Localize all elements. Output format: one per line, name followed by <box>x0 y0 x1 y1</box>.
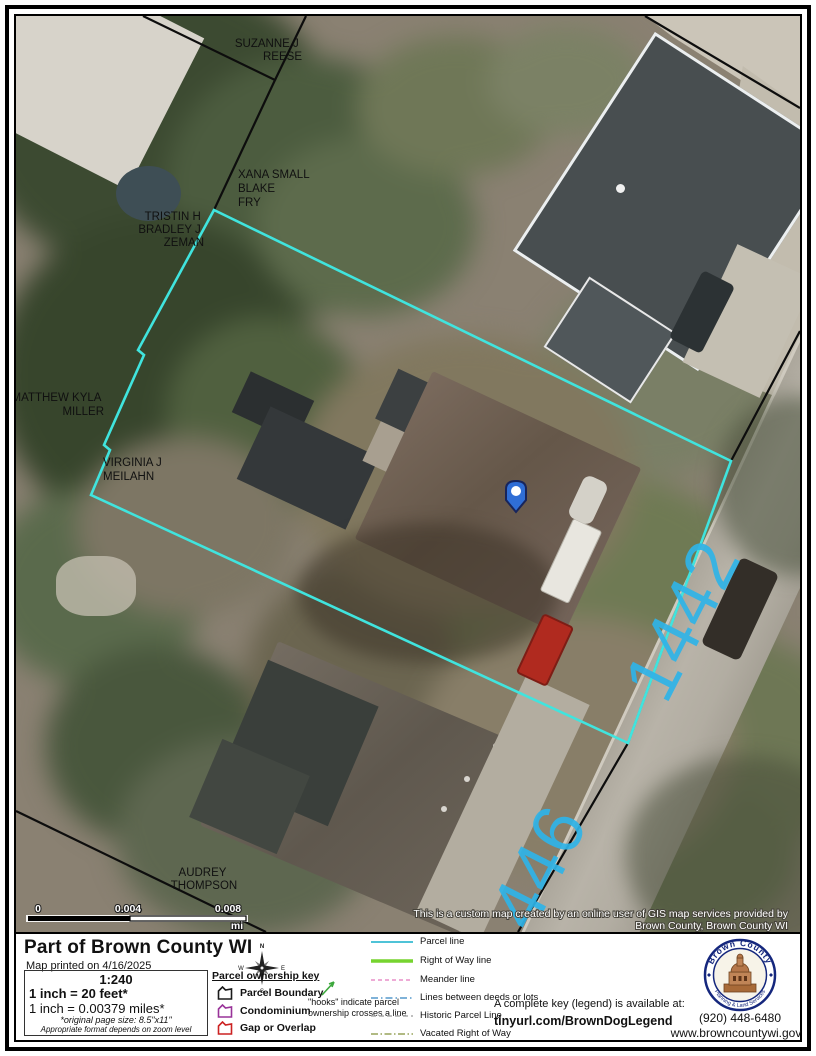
brown-county-logo: Brown County Planning & Land Services <box>703 938 777 1012</box>
ownership-key-label: Gap or Overlap <box>240 1022 316 1034</box>
scale-note-format: Appropriate format depends on zoom level <box>25 1025 207 1034</box>
page-inner-border: 1442 446 SUZANNE J REESE XANA SMALL BLAK… <box>14 14 802 1042</box>
scale-bar: 0 0.004 0.008 mi <box>26 903 248 932</box>
line-key-item: Vacated Right of Way <box>371 1028 511 1039</box>
line-key-label: Meander line <box>420 974 475 985</box>
phone-number: (920) 448-6480 <box>668 1011 812 1025</box>
complete-key-url: tinyurl.com/BrownDogLegend <box>494 1014 672 1028</box>
historic-parcel-line-sample <box>371 1012 413 1020</box>
website-url: www.browncountywi.gov <box>656 1026 816 1040</box>
owner-label-tristin: TRISTIN H BRADLEY J ZEMAN <box>138 211 204 249</box>
street-number-front: 1442 <box>609 527 757 713</box>
owner-label-matthew: MATTHEW KYLA MILLER <box>16 392 104 418</box>
scale-unit: mi <box>231 920 243 932</box>
map-overlay: 1442 446 SUZANNE J REESE XANA SMALL BLAK… <box>16 16 800 932</box>
scale-miles: 1 inch = 0.00379 miles* <box>25 1001 165 1016</box>
line-key-label: Parcel line <box>420 936 464 947</box>
page-title: Part of Brown County WI <box>24 937 252 959</box>
scale-info-box: 1:240 1 inch = 20 feet* 1 inch = 0.00379… <box>24 970 208 1036</box>
owner-label-xana: XANA SMALL BLAKE FRY <box>238 169 312 209</box>
line-key-label: Right of Way line <box>420 955 491 966</box>
line-key-item: Parcel line <box>371 936 464 947</box>
right-of-way-line-sample <box>371 957 413 965</box>
map-attribution: This is a custom map created by an onlin… <box>413 908 788 932</box>
ownership-key-heading: Parcel ownership key <box>212 970 319 982</box>
hook-arrow-icon <box>318 978 340 998</box>
svg-text:N: N <box>260 944 264 950</box>
ownership-key-item: Gap or Overlap <box>216 1021 316 1035</box>
condominium-icon <box>216 1004 234 1018</box>
meander-line-sample <box>371 976 413 984</box>
page-outer-border: 1442 446 SUZANNE J REESE XANA SMALL BLAK… <box>5 5 811 1051</box>
location-pin-marker <box>506 481 526 512</box>
gap-overlap-icon <box>216 1021 234 1035</box>
owner-label-virginia: VIRGINIA J MEILAHN <box>103 457 165 483</box>
svg-text:This is a custom map created b: This is a custom map created by an onlin… <box>413 908 788 920</box>
line-key-item: Right of Way line <box>371 955 491 966</box>
complete-key-text: A complete key (legend) is available at: <box>494 998 685 1010</box>
scale-note-page-size: *original page size: 8.5"x11" <box>25 1015 207 1025</box>
parcel-line-sample <box>371 938 413 946</box>
owner-label-audrey: AUDREY THOMPSON <box>171 867 237 892</box>
owner-label-suzanne: SUZANNE J REESE <box>235 38 302 63</box>
map-viewport: 1442 446 SUZANNE J REESE XANA SMALL BLAK… <box>16 16 800 934</box>
ownership-key-item: Condominium <box>216 1004 311 1018</box>
legend-panel: Part of Brown County WI Map printed on 4… <box>16 934 800 1040</box>
vacated-row-line-sample <box>371 1030 413 1038</box>
scale-tick: 0.008 <box>215 903 241 915</box>
scale-feet: 1 inch = 20 feet* <box>25 986 128 1001</box>
line-key-label: Historic Parcel Line <box>420 1010 502 1021</box>
ownership-key-label: Condominium <box>240 1005 311 1017</box>
parcel-boundary-icon <box>216 986 234 1000</box>
svg-text:Brown County, Brown County WI: Brown County, Brown County WI <box>635 920 788 932</box>
line-key-item: Historic Parcel Line <box>371 1010 502 1021</box>
scale-tick: 0 <box>35 903 41 915</box>
line-key-label: Vacated Right of Way <box>420 1028 511 1039</box>
printed-map-page: 1442 446 SUZANNE J REESE XANA SMALL BLAK… <box>0 0 816 1056</box>
line-key-item: Meander line <box>371 974 475 985</box>
deeds-lots-line-sample <box>371 994 413 1002</box>
scale-ratio: 1:240 <box>25 972 207 987</box>
scale-tick: 0.004 <box>115 903 141 915</box>
